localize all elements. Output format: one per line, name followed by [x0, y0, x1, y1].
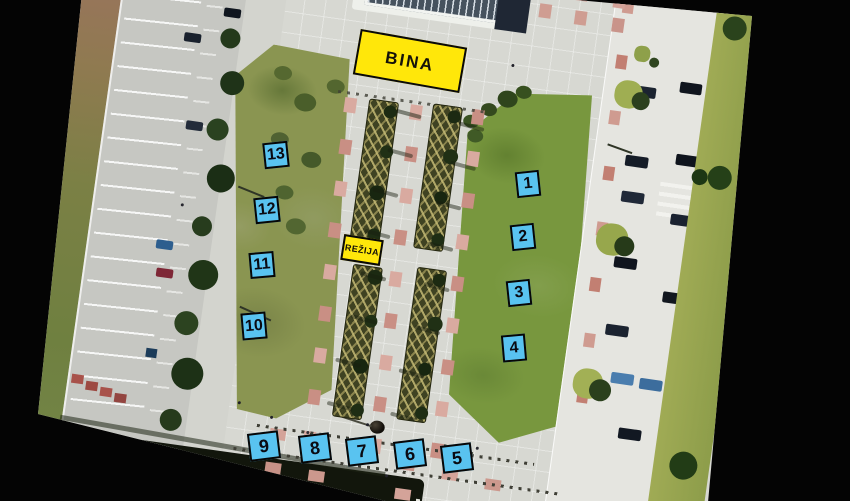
zone-marker-6: 6	[393, 438, 427, 470]
zone-marker-5: 5	[440, 442, 474, 474]
control-room-label: REŽIJA	[340, 234, 384, 266]
annotation-overlay: BINA REŽIJA 13121110123498765	[0, 0, 850, 501]
zone-marker-13: 13	[262, 141, 290, 169]
zone-marker-11: 11	[248, 251, 275, 279]
zone-marker-1: 1	[515, 170, 542, 198]
screenshot-canvas: BINA REŽIJA 13121110123498765	[0, 0, 850, 501]
zone-marker-9: 9	[247, 430, 281, 462]
zone-marker-2: 2	[510, 223, 537, 251]
zone-marker-10: 10	[240, 311, 267, 340]
zone-marker-3: 3	[506, 279, 533, 307]
zone-marker-4: 4	[501, 334, 527, 363]
stage-label: BINA	[353, 29, 467, 93]
zone-marker-12: 12	[253, 196, 281, 224]
zone-marker-7: 7	[345, 435, 379, 467]
zone-marker-8: 8	[298, 432, 332, 464]
